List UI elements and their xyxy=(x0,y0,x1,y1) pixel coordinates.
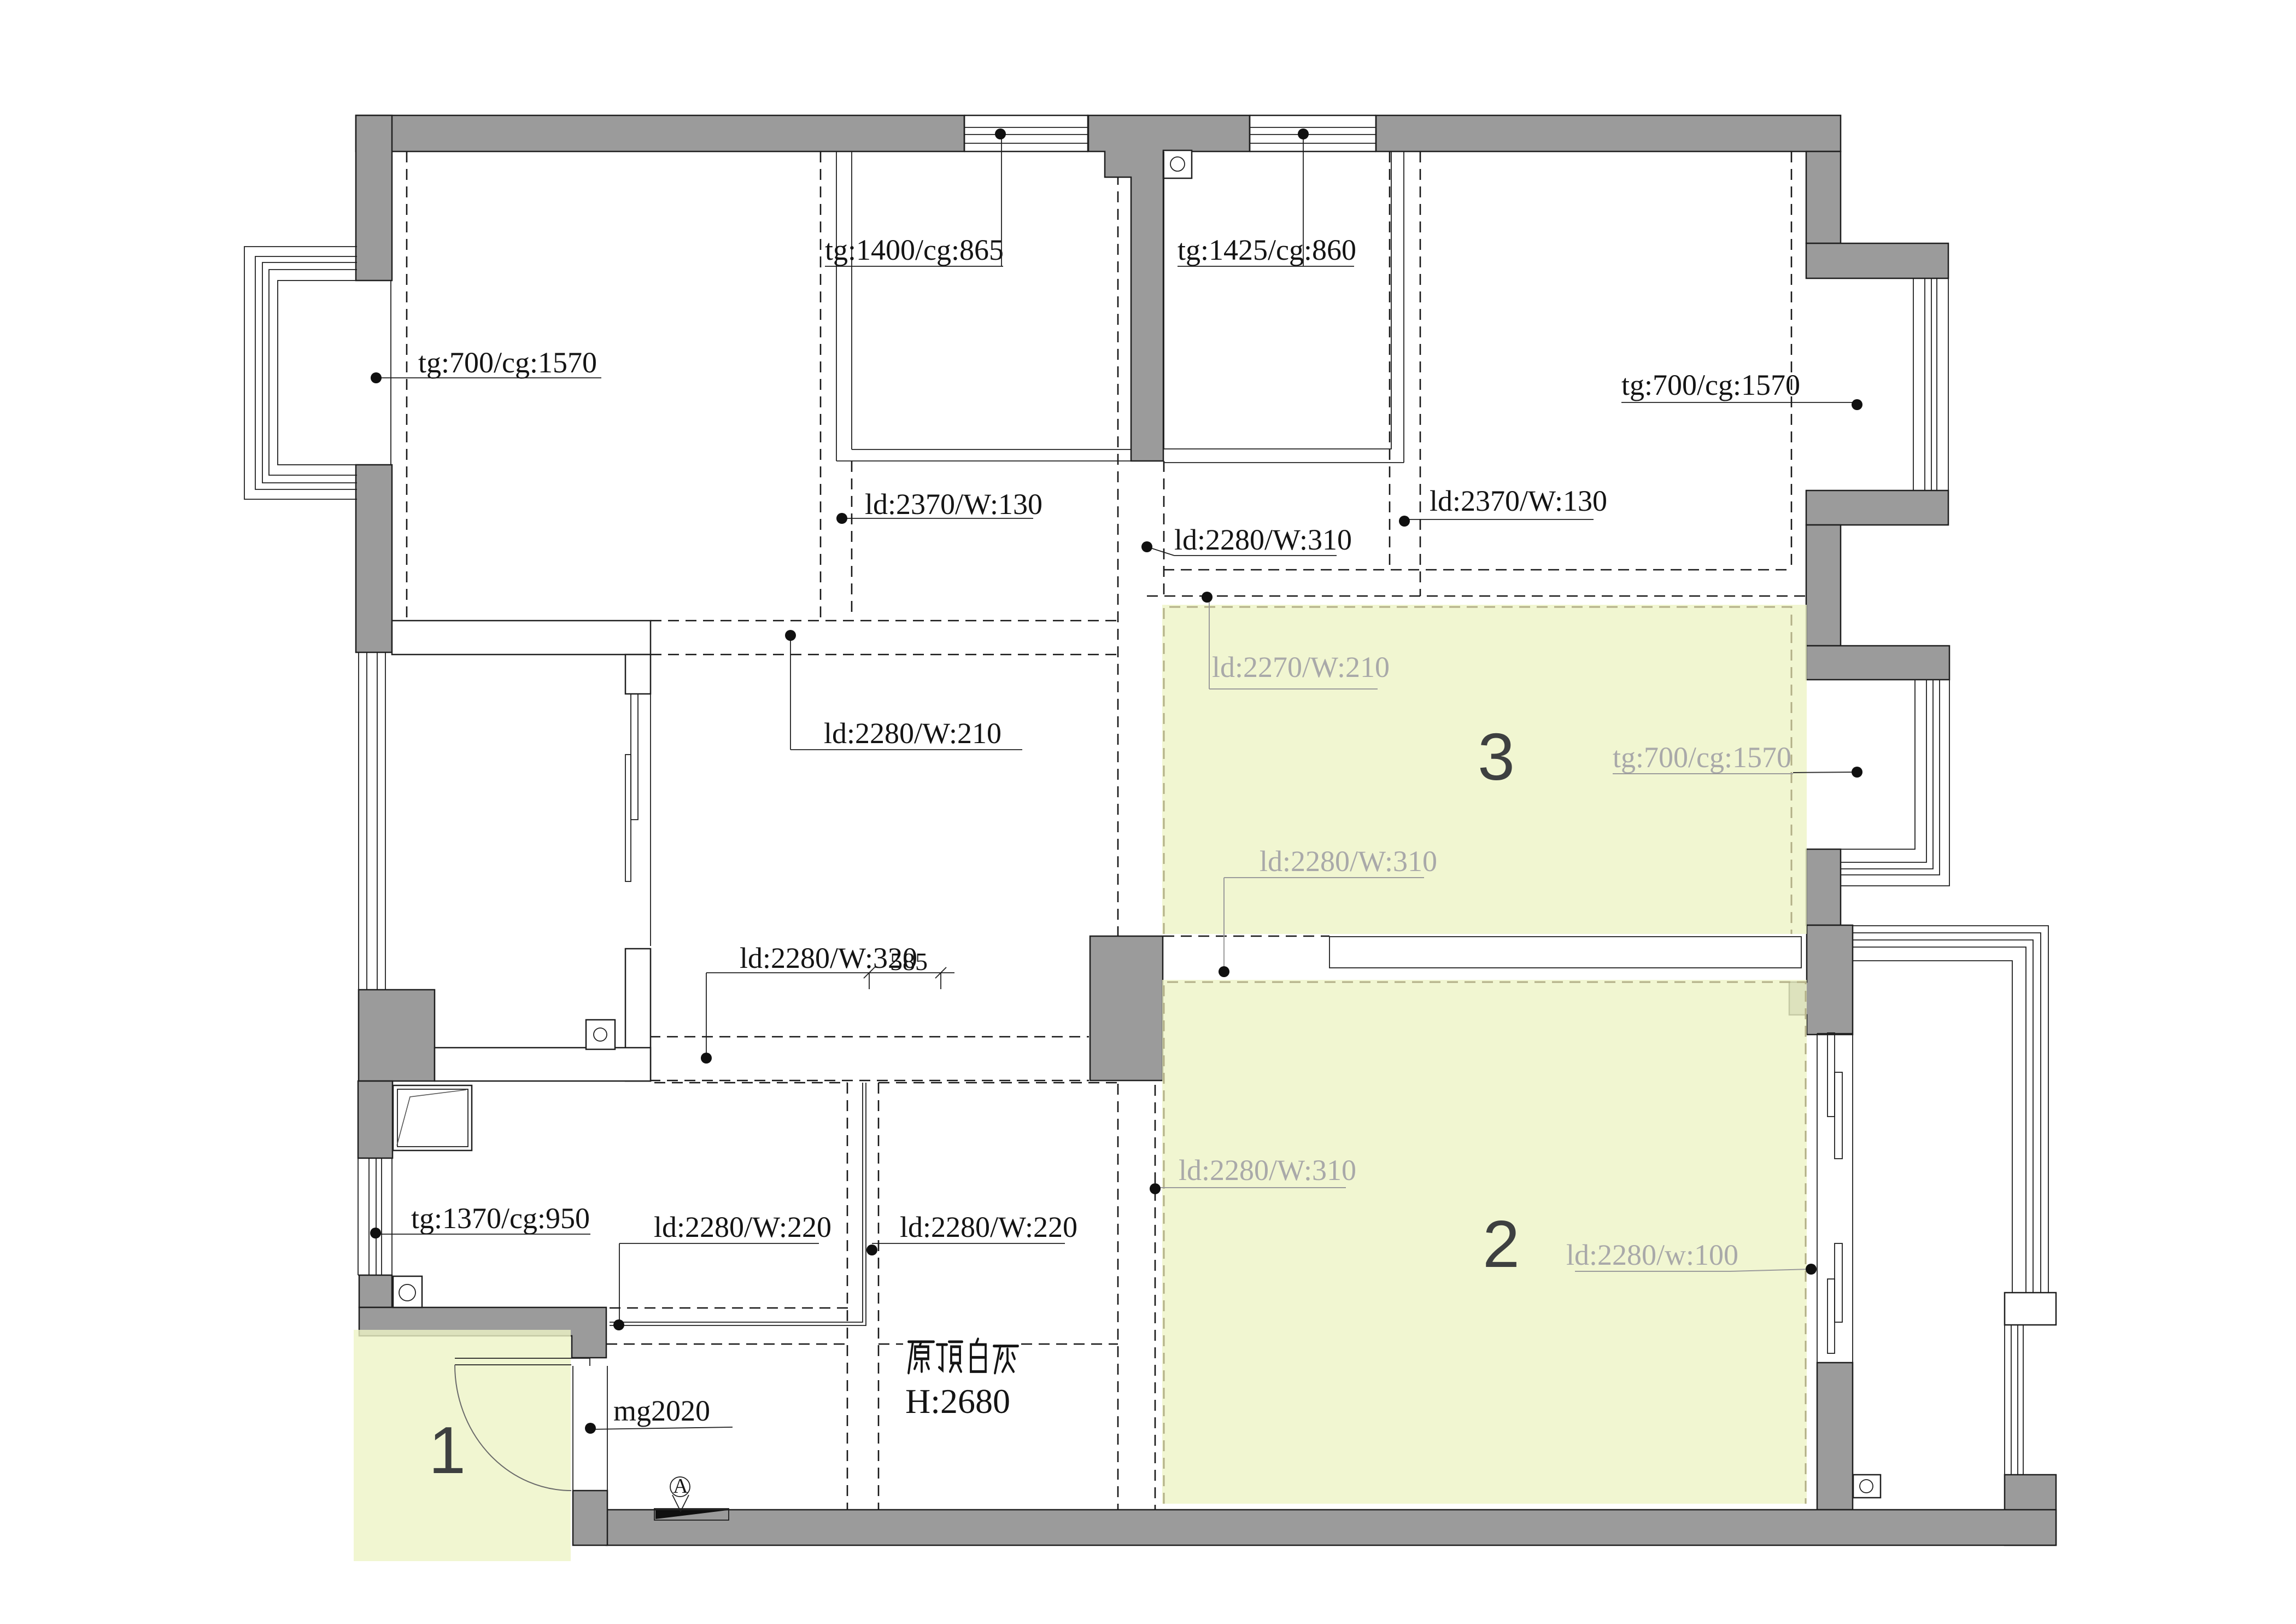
svg-text:ld:2280/W:310: ld:2280/W:310 xyxy=(1260,845,1437,878)
svg-text:tg:1400/cg:865: tg:1400/cg:865 xyxy=(825,233,1004,266)
svg-text:ld:2370/W:130: ld:2370/W:130 xyxy=(865,488,1042,521)
svg-text:1: 1 xyxy=(429,1413,466,1487)
svg-text:tg:700/cg:1570: tg:700/cg:1570 xyxy=(1613,741,1791,774)
svg-text:tg:1425/cg:860: tg:1425/cg:860 xyxy=(1178,233,1356,266)
svg-text:A: A xyxy=(673,1475,688,1498)
svg-text:ld:2280/W:310: ld:2280/W:310 xyxy=(1179,1154,1356,1187)
svg-text:ld:2280/W:210: ld:2280/W:210 xyxy=(824,717,1001,750)
svg-text:2: 2 xyxy=(1483,1207,1520,1281)
svg-text:ld:2270/W:210: ld:2270/W:210 xyxy=(1212,651,1390,684)
svg-text:tg:1370/cg:950: tg:1370/cg:950 xyxy=(411,1202,590,1235)
svg-text:ld:2280/W:220: ld:2280/W:220 xyxy=(654,1211,831,1243)
svg-text:tg:700/cg:1570: tg:700/cg:1570 xyxy=(418,346,597,379)
svg-text:ld:2280/w:100: ld:2280/w:100 xyxy=(1566,1239,1738,1271)
svg-text:mg2020: mg2020 xyxy=(613,1394,710,1427)
svg-text:ld:2280/W:310: ld:2280/W:310 xyxy=(1174,523,1352,556)
svg-text:ld:2370/W:130: ld:2370/W:130 xyxy=(1430,484,1607,517)
svg-text:tg:700/cg:1570: tg:700/cg:1570 xyxy=(1621,369,1800,401)
svg-text:H:2680: H:2680 xyxy=(905,1382,1010,1421)
svg-text:585: 585 xyxy=(890,948,928,975)
svg-text:3: 3 xyxy=(1478,720,1515,794)
svg-text:ld:2280/W:220: ld:2280/W:220 xyxy=(900,1211,1077,1243)
